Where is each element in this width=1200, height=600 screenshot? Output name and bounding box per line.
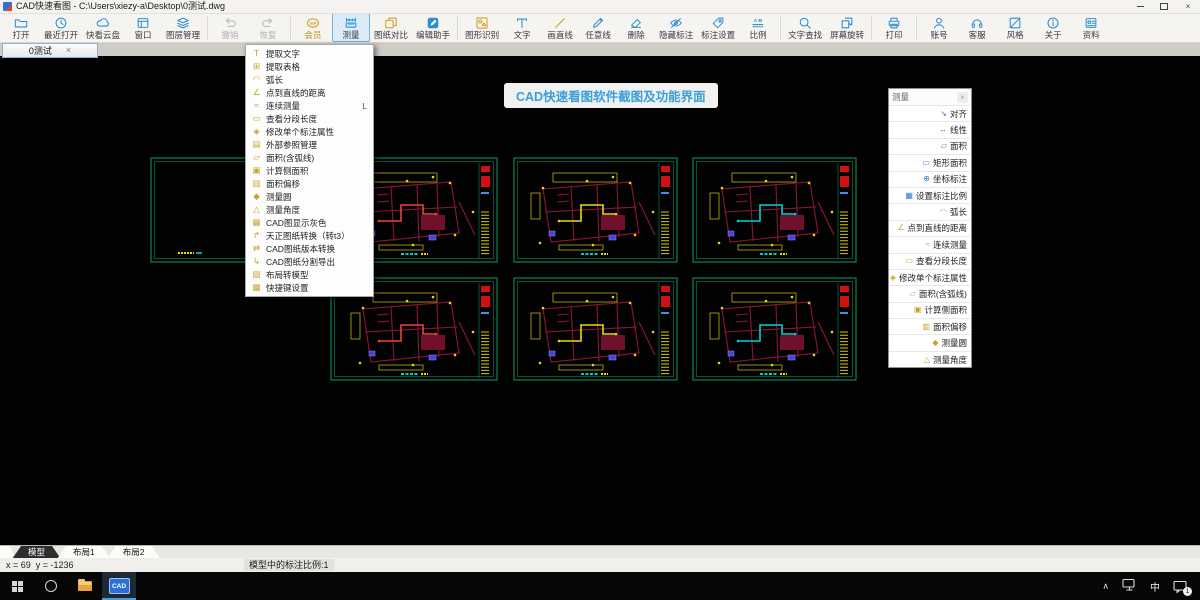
draw-line-icon	[553, 16, 567, 30]
redo-icon	[261, 16, 275, 30]
panel-item-label: 矩形面积	[933, 157, 967, 169]
panel-item-icon: △	[924, 356, 930, 364]
menu-item-6[interactable]: ◈修改单个标注属性	[246, 125, 373, 138]
panel-item-label: 测量角度	[933, 354, 967, 366]
toolbar-button-label: 打开	[12, 30, 29, 40]
toolbar-button-label: 标注设置	[701, 30, 735, 40]
toolbar-button-support[interactable]: 客服	[958, 13, 996, 42]
menu-item-label: 弧长	[266, 74, 283, 86]
annotation-scale-text: 模型中的标注比例:1	[244, 559, 334, 571]
menu-item-label: 点到直线的距离	[266, 87, 326, 99]
menu-item-icon: ▨	[250, 268, 263, 281]
menu-item-icon: ◆	[250, 190, 263, 203]
toolbar-button-label: 快看云盘	[86, 30, 120, 40]
menu-item-label: 测量圆	[266, 191, 292, 203]
text-icon	[515, 16, 529, 30]
style-icon	[1008, 16, 1022, 30]
panel-item-8[interactable]: ≈连续测量	[889, 236, 971, 252]
close-icon: ×	[1186, 0, 1191, 13]
panel-item-15[interactable]: △测量角度	[889, 351, 971, 367]
panel-item-label: 查看分段长度	[916, 255, 967, 267]
document-tab[interactable]: 0测试 ×	[2, 43, 98, 58]
screen-rotate-icon	[840, 16, 854, 30]
menu-item-icon: ▦	[250, 216, 263, 229]
panel-item-icon: ⊕	[923, 175, 930, 183]
undo-icon	[223, 16, 237, 30]
window-controls: ×	[1128, 0, 1200, 13]
cortana-button[interactable]	[34, 572, 68, 600]
drawing-canvas[interactable]: CAD快速看图软件截图及功能界面	[0, 56, 1200, 545]
panel-item-label: 点到直线的距离	[907, 222, 967, 234]
title-bar: CAD快速看图 - C:\Users\xiezy-a\Desktop\0测试.d…	[0, 0, 1200, 14]
measure-icon	[344, 16, 358, 30]
menu-item-shortcut: L	[356, 101, 367, 111]
toolbar-button-label: 撤销	[222, 30, 239, 40]
panel-item-icon: ▱	[941, 142, 947, 150]
panel-item-icon: ◠	[940, 208, 947, 216]
toolbar-button-label: 任意线	[585, 30, 611, 40]
cad-thumbnail-3[interactable]	[692, 157, 857, 263]
start-button[interactable]	[0, 572, 34, 600]
menu-item-14[interactable]: ↱天正图纸转换（转t3）	[246, 229, 373, 242]
folder-icon	[78, 581, 92, 591]
main-toolbar: 打开最近打开快看云盘窗口图层管理撤销恢复VIP会员测量图纸对比编辑助手图形识别文…	[0, 13, 1200, 43]
window-title: CAD快速看图 - C:\Users\xiezy-a\Desktop\0测试.d…	[16, 0, 225, 13]
panel-item-label: 面积偏移	[933, 321, 967, 333]
taskbar: CAD ∧ 中 1	[0, 572, 1200, 600]
toolbar-button-label: 资料	[1083, 30, 1100, 40]
panel-item-0[interactable]: ↘对齐	[889, 105, 971, 121]
edit-assistant-icon	[426, 16, 440, 30]
measure-panel-title: 测量	[892, 91, 909, 103]
panel-item-icon: ▣	[914, 306, 922, 314]
toolbar-button-recent-open[interactable]: 最近打开	[40, 13, 82, 42]
menu-item-label: 天正图纸转换（转t3）	[266, 230, 350, 242]
compare-icon	[384, 16, 398, 30]
cad-thumbnail-6[interactable]	[692, 277, 857, 381]
panel-item-5[interactable]: ▦设置标注比例	[889, 187, 971, 203]
panel-item-icon: ≈	[926, 241, 930, 249]
window-icon	[136, 16, 150, 30]
panel-item-11[interactable]: ▱面积(含弧线)	[889, 285, 971, 301]
input-method-indicator[interactable]: 中	[1150, 579, 1160, 594]
toolbar-button-label: 隐藏标注	[659, 30, 693, 40]
menu-item-icon: ↳	[250, 255, 263, 268]
menu-item-icon: T	[250, 47, 263, 60]
watermark-banner: CAD快速看图软件截图及功能界面	[504, 83, 718, 108]
menu-item-11[interactable]: ◆测量圆	[246, 190, 373, 203]
toolbar-button-redo: 恢复	[249, 13, 287, 42]
document-tab-bar: 0测试 ×	[0, 42, 1200, 56]
panel-item-label: 连续测量	[933, 239, 967, 251]
action-center-button[interactable]: 1	[1173, 580, 1188, 593]
panel-item-label: 计算侧面积	[924, 304, 967, 316]
menu-item-icon: ▭	[250, 112, 263, 125]
panel-item-label: 坐标标注	[933, 173, 967, 185]
toolbar-button-edit-assistant[interactable]: 编辑助手	[412, 13, 454, 42]
menu-item-icon: ∠	[250, 86, 263, 99]
toolbar-button-label: 窗口	[135, 30, 152, 40]
menu-item-label: 面积偏移	[266, 178, 300, 190]
toolbar-button-measure[interactable]: 测量	[332, 13, 370, 42]
menu-item-13[interactable]: ▦CAD图显示灰色	[246, 216, 373, 229]
menu-item-label: CAD图显示灰色	[266, 217, 326, 229]
toolbar-separator	[290, 16, 291, 40]
panel-item-10[interactable]: ◈修改单个标注属性	[889, 269, 971, 285]
toolbar-button-label: 最近打开	[44, 30, 78, 40]
display-icon[interactable]	[1122, 578, 1137, 594]
menu-item-icon: ⊞	[250, 60, 263, 73]
minimize-icon	[1137, 6, 1144, 7]
annotation-settings-icon	[711, 16, 725, 30]
panel-item-icon: ↘	[940, 110, 947, 118]
menu-item-2[interactable]: ◠弧长	[246, 73, 373, 86]
toolbar-button-label: 图纸对比	[374, 30, 408, 40]
menu-item-12[interactable]: △测量角度	[246, 203, 373, 216]
toolbar-button-label: 删除	[628, 30, 645, 40]
panel-item-1[interactable]: ↔线性	[889, 121, 971, 137]
cortana-circle-icon	[45, 580, 57, 592]
layer-manager-icon	[176, 16, 190, 30]
toolbar-button-label: 客服	[969, 30, 986, 40]
scale-icon: A:B	[751, 16, 765, 30]
panel-item-icon: ◈	[890, 274, 896, 282]
menu-item-label: 面积(含弧线)	[266, 152, 314, 164]
toolbar-button-label: 风格	[1007, 30, 1024, 40]
text-search-icon	[798, 16, 812, 30]
status-bar: x = 69 y = -1236 模型中的标注比例:1	[0, 558, 1200, 572]
panel-item-label: 设置标注比例	[916, 190, 967, 202]
file-explorer-button[interactable]	[68, 572, 102, 600]
cad-app-icon: CAD	[109, 578, 130, 594]
toolbar-button-label: 图形识别	[465, 30, 499, 40]
menu-item-label: 计算侧面积	[266, 165, 309, 177]
menu-item-icon: ↱	[250, 229, 263, 242]
measure-panel-header: 测量 ×	[889, 89, 971, 105]
toolbar-button-label: 会员	[305, 30, 322, 40]
toolbar-button-freehand-line[interactable]: 任意线	[579, 13, 617, 42]
menu-item-icon: ▩	[250, 281, 263, 294]
toolbar-button-print[interactable]: 打印	[875, 13, 913, 42]
open-icon	[14, 16, 28, 30]
menu-item-0[interactable]: T提取文字	[246, 47, 373, 60]
hide-annotation-icon	[669, 16, 683, 30]
menu-item-1[interactable]: ⊞提取表格	[246, 60, 373, 73]
menu-item-8[interactable]: ▱面积(含弧线)	[246, 151, 373, 164]
menu-item-label: 连续测量	[266, 100, 300, 112]
menu-item-9[interactable]: ▣计算侧面积	[246, 164, 373, 177]
toolbar-button-annotation-settings[interactable]: 标注设置	[697, 13, 739, 42]
cad-thumbnail-2[interactable]	[513, 157, 678, 263]
menu-item-3[interactable]: ∠点到直线的距离	[246, 86, 373, 99]
maximize-button[interactable]	[1152, 0, 1176, 13]
menu-item-10[interactable]: ▥面积偏移	[246, 177, 373, 190]
measure-dropdown-menu: T提取文字⊞提取表格◠弧长∠点到直线的距离≈连续测量L▭查看分段长度◈修改单个标…	[245, 44, 374, 297]
panel-item-label: 弧长	[950, 206, 967, 218]
menu-item-label: 提取表格	[266, 61, 300, 73]
measure-panel: 测量 × ↘对齐↔线性▱面积▭矩形面积⊕坐标标注▦设置标注比例◠弧长∠点到直线的…	[888, 88, 972, 368]
toolbar-button-label: 打印	[886, 30, 903, 40]
panel-item-label: 对齐	[950, 108, 967, 120]
toolbar-button-about[interactable]: 关于	[1034, 13, 1072, 42]
toolbar-button-hide-annotation[interactable]: 隐藏标注	[655, 13, 697, 42]
toolbar-button-account[interactable]: 账号	[920, 13, 958, 42]
toolbar-button-compare[interactable]: 图纸对比	[370, 13, 412, 42]
toolbar-button-layer-manager[interactable]: 图层管理	[162, 13, 204, 42]
toolbar-button-label: 账号	[931, 30, 948, 40]
toolbar-button-label: 关于	[1045, 30, 1062, 40]
svg-text:A:B: A:B	[754, 17, 763, 23]
measure-panel-close-icon[interactable]: ×	[957, 92, 968, 103]
docs-icon	[1084, 16, 1098, 30]
panel-item-label: 面积(含弧线)	[919, 288, 967, 300]
toolbar-separator	[871, 16, 872, 40]
panel-item-icon: ◆	[932, 339, 938, 347]
notification-badge: 1	[1183, 587, 1192, 596]
document-tab-label: 0测试	[29, 44, 52, 57]
panel-item-7[interactable]: ∠点到直线的距离	[889, 220, 971, 236]
windows-logo-icon	[12, 581, 23, 592]
panel-item-14[interactable]: ◆测量圆	[889, 334, 971, 350]
menu-item-icon: ◈	[250, 125, 263, 138]
document-tab-close-icon[interactable]: ×	[66, 46, 71, 55]
toolbar-button-label: 测量	[343, 30, 360, 40]
menu-item-icon: ≈	[250, 99, 263, 112]
menu-item-label: 快捷键设置	[266, 282, 309, 294]
tray-chevron-up-icon[interactable]: ∧	[1102, 581, 1109, 592]
toolbar-separator	[916, 16, 917, 40]
cursor-coordinates: x = 69 y = -1236	[6, 560, 74, 570]
panel-item-3[interactable]: ▭矩形面积	[889, 154, 971, 170]
toolbar-button-text[interactable]: 文字	[503, 13, 541, 42]
menu-item-icon: ▥	[250, 177, 263, 190]
menu-item-label: 外部参照管理	[266, 139, 317, 151]
toolbar-button-undo: 撤销	[211, 13, 249, 42]
menu-item-16[interactable]: ↳CAD图纸分割导出	[246, 255, 373, 268]
menu-item-7[interactable]: ▤外部参照管理	[246, 138, 373, 151]
cloud-icon	[96, 16, 110, 30]
toolbar-button-label: 文字查找	[788, 30, 822, 40]
minimize-button[interactable]	[1128, 0, 1152, 13]
toolbar-separator	[780, 16, 781, 40]
cad-app-taskbar-button[interactable]: CAD	[102, 572, 136, 600]
about-icon	[1046, 16, 1060, 30]
menu-item-17[interactable]: ▨布局转模型	[246, 268, 373, 281]
toolbar-button-label: 画直线	[547, 30, 573, 40]
panel-item-label: 修改单个标注属性	[899, 272, 967, 284]
print-icon	[887, 16, 901, 30]
toolbar-button-delete[interactable]: 删除	[617, 13, 655, 42]
toolbar-button-label: 编辑助手	[416, 30, 450, 40]
menu-item-4[interactable]: ≈连续测量L	[246, 99, 373, 112]
toolbar-button-cloud[interactable]: 快看云盘	[82, 13, 124, 42]
panel-item-13[interactable]: ▥面积偏移	[889, 318, 971, 334]
menu-item-label: CAD图纸版本转换	[266, 243, 335, 255]
menu-item-icon: △	[250, 203, 263, 216]
application-window: CAD快速看图 - C:\Users\xiezy-a\Desktop\0测试.d…	[0, 0, 1200, 600]
maximize-icon	[1160, 3, 1168, 10]
panel-item-icon: ▭	[905, 257, 913, 265]
toolbar-button-label: 图层管理	[166, 30, 200, 40]
toolbar-button-screen-rotate[interactable]: 屏幕旋转	[826, 13, 868, 42]
freehand-line-icon	[591, 16, 605, 30]
toolbar-button-open[interactable]: 打开	[2, 13, 40, 42]
menu-item-icon: ▣	[250, 164, 263, 177]
menu-item-label: CAD图纸分割导出	[266, 256, 335, 268]
panel-item-icon: ▥	[922, 323, 930, 331]
menu-item-label: 布局转模型	[266, 269, 309, 281]
menu-item-5[interactable]: ▭查看分段长度	[246, 112, 373, 125]
menu-item-18[interactable]: ▩快捷键设置	[246, 281, 373, 294]
svg-text:VIP: VIP	[310, 20, 317, 25]
shape-recognition-icon	[475, 16, 489, 30]
panel-item-label: 线性	[950, 124, 967, 136]
panel-item-9[interactable]: ▭查看分段长度	[889, 253, 971, 269]
close-button[interactable]: ×	[1176, 0, 1200, 13]
panel-item-icon: ↔	[939, 126, 947, 134]
panel-item-icon: ▭	[922, 159, 930, 167]
panel-item-12[interactable]: ▣计算侧面积	[889, 302, 971, 318]
support-icon	[970, 16, 984, 30]
menu-item-label: 提取文字	[266, 48, 300, 60]
vip-icon: VIP	[306, 16, 320, 30]
toolbar-button-docs[interactable]: 资料	[1072, 13, 1110, 42]
panel-item-icon: ▱	[910, 290, 916, 298]
layout-tab-bar: 模型布局1布局2	[0, 545, 1200, 559]
toolbar-separator	[207, 16, 208, 40]
taskbar-tray: ∧ 中 1	[1102, 578, 1200, 594]
delete-icon	[629, 16, 643, 30]
toolbar-button-style[interactable]: 风格	[996, 13, 1034, 42]
panel-item-4[interactable]: ⊕坐标标注	[889, 171, 971, 187]
menu-item-icon: ⇄	[250, 242, 263, 255]
menu-item-label: 查看分段长度	[266, 113, 317, 125]
toolbar-button-text-search[interactable]: 文字查找	[784, 13, 826, 42]
toolbar-button-window[interactable]: 窗口	[124, 13, 162, 42]
toolbar-button-shape-recognition[interactable]: 图形识别	[461, 13, 503, 42]
toolbar-button-label: 屏幕旋转	[830, 30, 864, 40]
app-icon	[3, 2, 12, 11]
toolbar-button-label: 恢复	[260, 30, 277, 40]
toolbar-button-label: 文字	[514, 30, 531, 40]
menu-item-icon: ▤	[250, 138, 263, 151]
toolbar-button-label: 比例	[750, 30, 767, 40]
recent-open-icon	[54, 16, 68, 30]
panel-item-label: 面积	[950, 140, 967, 152]
panel-item-icon: ∠	[897, 224, 904, 232]
menu-item-label: 测量角度	[266, 204, 300, 216]
toolbar-button-draw-line[interactable]: 画直线	[541, 13, 579, 42]
panel-item-6[interactable]: ◠弧长	[889, 203, 971, 219]
panel-item-label: 测量圆	[941, 337, 967, 349]
menu-item-icon: ▱	[250, 151, 263, 164]
panel-item-icon: ▦	[905, 192, 913, 200]
menu-item-icon: ◠	[250, 73, 263, 86]
menu-item-15[interactable]: ⇄CAD图纸版本转换	[246, 242, 373, 255]
toolbar-button-vip[interactable]: VIP会员	[294, 13, 332, 42]
account-icon	[932, 16, 946, 30]
toolbar-button-scale[interactable]: A:B比例	[739, 13, 777, 42]
menu-item-label: 修改单个标注属性	[266, 126, 334, 138]
toolbar-separator	[457, 16, 458, 40]
panel-item-2[interactable]: ▱面积	[889, 138, 971, 154]
cad-thumbnail-5[interactable]	[513, 277, 678, 381]
